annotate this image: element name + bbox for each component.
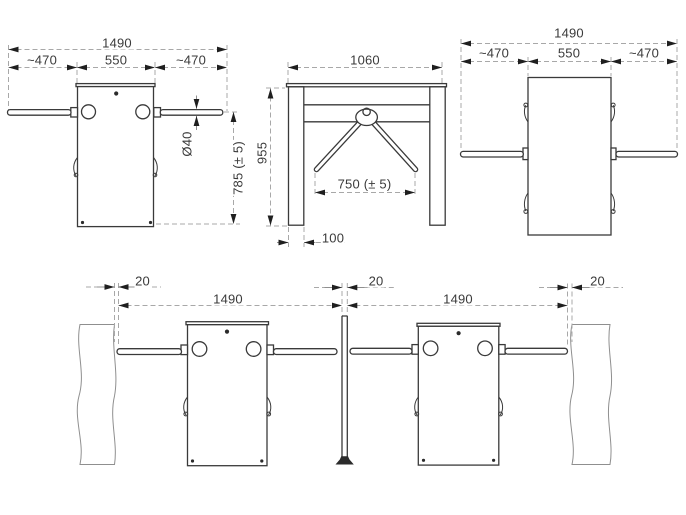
- installation-layout: [77, 283, 623, 466]
- front-view: [266, 62, 447, 247]
- tripod-arms: [317, 124, 416, 170]
- dim-label-front-height: 955: [256, 140, 269, 164]
- turnstile-right: [350, 323, 568, 465]
- dim-label-total-width-left-view: 1490: [101, 36, 133, 49]
- rotor-hub: [356, 109, 378, 125]
- dim-label-arm-diameter: Ø40: [181, 130, 194, 157]
- arm-hub-left: [71, 108, 78, 117]
- plan-view-right: [461, 39, 678, 235]
- dim-label-left-arm-left-view: ~470: [26, 53, 58, 66]
- cabinet-body: [528, 78, 611, 236]
- dim-label-arm-height: 785 (± 5): [231, 140, 244, 196]
- arm-hub-right: [154, 108, 161, 117]
- leg-left: [289, 87, 304, 225]
- dim-label-rotor-span: 750 (± 5): [337, 177, 393, 190]
- dim-label-right-arm-left-view: ~470: [175, 53, 207, 66]
- plan-view-left: [8, 45, 241, 227]
- lock-screw: [114, 91, 118, 95]
- dim-label-leg-width: 100: [321, 231, 345, 244]
- arm-tube-right: [160, 110, 223, 116]
- dim-label-cabinet-right-view: 550: [557, 46, 581, 59]
- dim-label-front-width: 1060: [349, 54, 381, 67]
- arm-tube-left: [8, 110, 72, 116]
- dim-label-total-width-right-view: 1490: [553, 27, 585, 40]
- center-post: [336, 316, 354, 465]
- drawing-line-art: [0, 0, 686, 515]
- turnstile-left: [117, 322, 337, 466]
- dim-label-wall-gap-left: 20: [134, 274, 151, 287]
- leg-right: [430, 87, 445, 225]
- top-lid: [287, 84, 447, 87]
- dim-label-right-arm-right-view: ~470: [628, 46, 660, 59]
- dim-label-post-gap: 20: [368, 275, 385, 288]
- dim-label-lane-right: 1490: [442, 293, 474, 306]
- arm-hub-right: [611, 148, 616, 160]
- brick-wall-left: [77, 325, 116, 465]
- dim-label-cabinet-left-view: 550: [104, 53, 128, 66]
- dim-label-left-arm-right-view: ~470: [478, 46, 510, 59]
- dim-label-lane-left: 1490: [212, 292, 244, 305]
- technical-drawing: 1490 ~470 550 ~470 Ø40 785 (± 5) 1060 95…: [0, 0, 686, 515]
- arm-tube-right: [616, 151, 678, 157]
- brick-wall-right: [570, 325, 612, 465]
- dim-label-wall-gap-right: 20: [589, 274, 606, 287]
- cabinet-body: [78, 87, 154, 227]
- arm-tube-left: [461, 151, 524, 157]
